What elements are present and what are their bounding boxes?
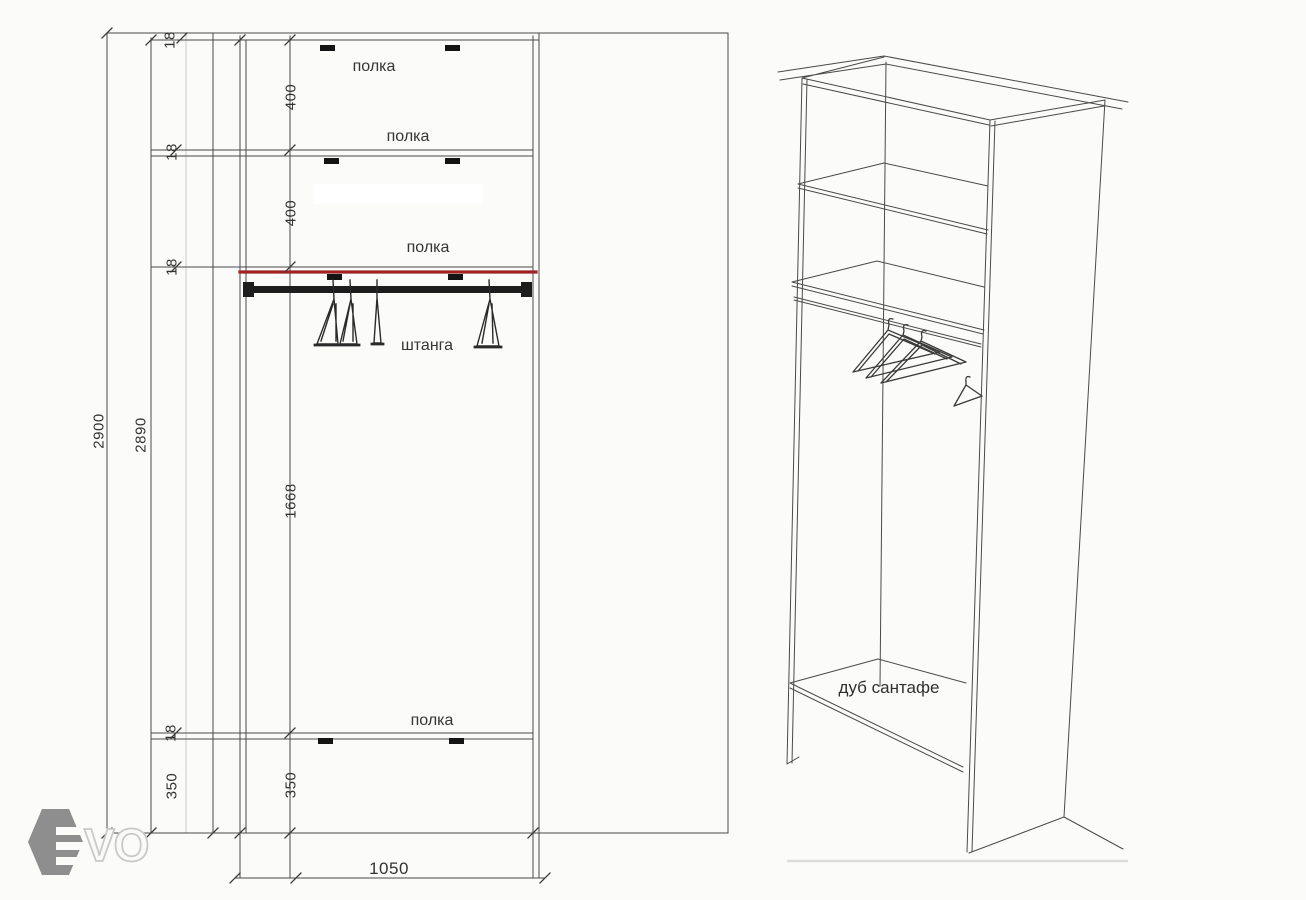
dim-inner-height: 2890 — [133, 417, 150, 452]
evo-logo-mark — [28, 809, 86, 875]
hangers-3d — [853, 319, 982, 406]
blueprint-line-art — [0, 0, 1306, 900]
label-shelf-top: полка — [353, 58, 396, 76]
dim-panel-18-upper: 18 — [164, 143, 181, 161]
dim-panel-18-middle: 18 — [164, 258, 181, 276]
scan-erased-patch — [313, 184, 483, 204]
label-rod: штанга — [401, 337, 453, 355]
dim-gap-400-middle: 400 — [283, 200, 300, 227]
front-view-drawing — [102, 28, 728, 883]
dim-width-1050: 1050 — [369, 859, 409, 879]
perspective-view-drawing — [778, 56, 1128, 861]
dim-hanging-1668: 1668 — [283, 483, 300, 518]
dim-panel-18-bottom: 18 — [163, 724, 180, 742]
dim-plinth-inner: 350 — [283, 772, 300, 799]
dim-panel-18-top: 18 — [162, 31, 179, 49]
label-material: дуб сантафе — [839, 678, 940, 698]
dim-total-height: 2900 — [91, 413, 108, 448]
logo-text: VO — [84, 818, 148, 872]
label-shelf-upper: полка — [387, 128, 430, 146]
front-view-structure — [107, 33, 728, 878]
label-shelf-middle: полка — [407, 239, 450, 257]
wardrobe-blueprint: 2900 2890 18 18 18 18 350 400 400 1668 3… — [0, 0, 1306, 900]
dim-plinth-left: 350 — [164, 773, 181, 800]
logo-hexagon-bars — [56, 827, 86, 865]
label-shelf-bottom: полка — [411, 712, 454, 730]
dim-gap-400-top: 400 — [283, 84, 300, 111]
